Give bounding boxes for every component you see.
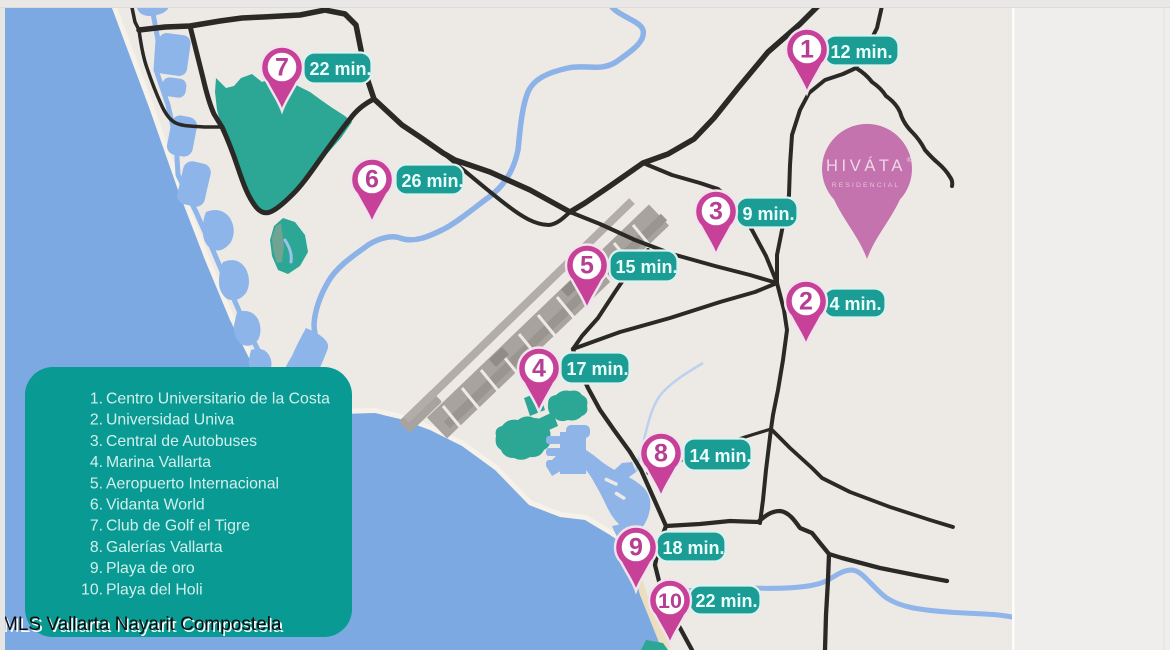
svg-text:6: 6 bbox=[365, 166, 379, 194]
svg-text:9.: 9. bbox=[90, 560, 103, 577]
svg-text:4.: 4. bbox=[90, 454, 103, 471]
svg-text:2: 2 bbox=[799, 288, 813, 316]
svg-text:Central de Autobuses: Central de Autobuses bbox=[106, 433, 257, 450]
svg-text:7.: 7. bbox=[90, 518, 103, 535]
svg-text:10.: 10. bbox=[81, 581, 103, 598]
svg-text:18 min.: 18 min. bbox=[663, 538, 725, 558]
svg-text:4: 4 bbox=[532, 355, 546, 383]
svg-text:3.: 3. bbox=[90, 433, 103, 450]
svg-text:5: 5 bbox=[580, 252, 594, 280]
svg-text:4 min.: 4 min. bbox=[830, 294, 882, 314]
svg-text:®: ® bbox=[907, 156, 912, 164]
svg-text:14 min.: 14 min. bbox=[690, 446, 752, 466]
svg-text:1: 1 bbox=[800, 36, 814, 64]
svg-text:Universidad Univa: Universidad Univa bbox=[106, 412, 234, 429]
svg-text:3: 3 bbox=[709, 198, 723, 226]
svg-text:7: 7 bbox=[275, 54, 289, 82]
svg-text:Club de Golf el Tigre: Club de Golf el Tigre bbox=[106, 518, 250, 535]
svg-text:5.: 5. bbox=[90, 475, 103, 492]
svg-text:8.: 8. bbox=[90, 539, 103, 556]
svg-text:Centro Universitario de la Cos: Centro Universitario de la Costa bbox=[106, 391, 330, 408]
svg-text:Vidanta World: Vidanta World bbox=[106, 497, 205, 514]
svg-text:MLS Vallarta Nayarit Compostel: MLS Vallarta Nayarit Compostela bbox=[2, 614, 282, 635]
svg-text:8: 8 bbox=[654, 440, 668, 468]
svg-text:RESIDENCIAL: RESIDENCIAL bbox=[832, 182, 900, 189]
svg-text:10: 10 bbox=[658, 589, 682, 613]
svg-text:Playa del Holi: Playa del Holi bbox=[106, 581, 203, 598]
svg-text:9 min.: 9 min. bbox=[743, 204, 795, 224]
svg-text:Aeropuerto Internacional: Aeropuerto Internacional bbox=[106, 475, 279, 492]
svg-text:Galerías Vallarta: Galerías Vallarta bbox=[106, 539, 223, 556]
svg-text:26 min.: 26 min. bbox=[402, 171, 464, 191]
svg-text:9: 9 bbox=[629, 534, 643, 562]
svg-text:22 min.: 22 min. bbox=[310, 59, 372, 79]
svg-text:17 min.: 17 min. bbox=[567, 359, 629, 379]
svg-text:15 min.: 15 min. bbox=[616, 257, 678, 277]
svg-text:6.: 6. bbox=[90, 497, 103, 514]
svg-text:12 min.: 12 min. bbox=[831, 42, 893, 62]
svg-text:Marina Vallarta: Marina Vallarta bbox=[106, 454, 211, 471]
svg-text:HIVÁTA: HIVÁTA bbox=[826, 156, 906, 175]
svg-text:1.: 1. bbox=[90, 391, 103, 408]
svg-text:Playa de oro: Playa de oro bbox=[106, 560, 195, 577]
svg-text:22 min.: 22 min. bbox=[696, 591, 758, 611]
svg-text:2.: 2. bbox=[90, 412, 103, 429]
